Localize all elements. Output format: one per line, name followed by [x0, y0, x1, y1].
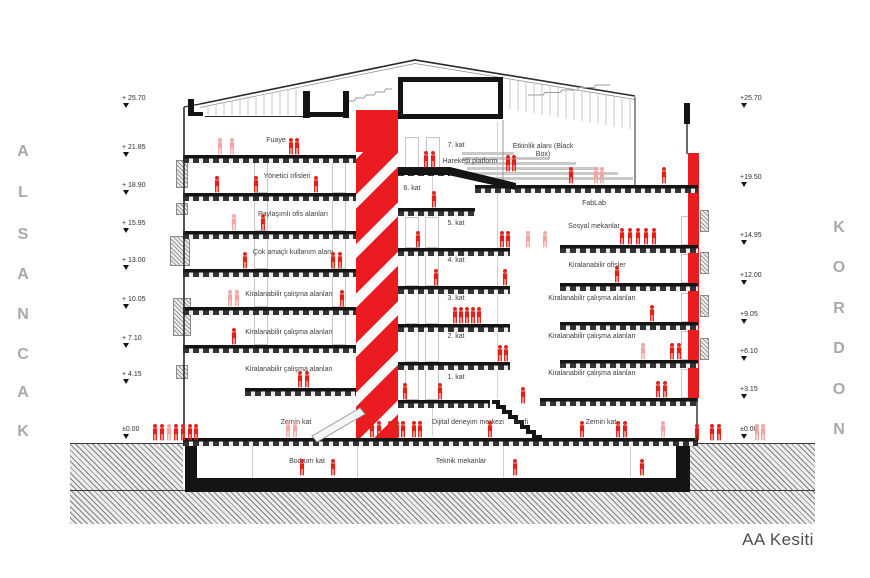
- person-figure: [416, 421, 424, 438]
- side-letter-left: S: [10, 226, 36, 244]
- signage-pole: [684, 103, 690, 124]
- person-figure: [291, 421, 299, 438]
- room-label: Kiralanabilir çalışma alanları: [242, 291, 337, 299]
- elevation-marker: ±0.00: [122, 426, 139, 433]
- person-figure: [486, 421, 494, 438]
- room-label: 1. kat: [436, 374, 476, 382]
- person-figure: [228, 138, 236, 155]
- room-label: Teknik mekanlar: [414, 458, 509, 466]
- elevation-marker: + 25.70: [122, 95, 146, 102]
- elevation-marker: +6.10: [740, 348, 758, 355]
- room-label: Kiralanabilir ofisler: [547, 262, 647, 270]
- person-figure: [252, 176, 260, 193]
- person-figure: [213, 176, 221, 193]
- room-label: 3. kat: [436, 295, 476, 303]
- black-box-volume: [401, 80, 501, 117]
- room-label: 2. kat: [436, 333, 476, 341]
- person-figure: [414, 231, 422, 248]
- side-letter-right: R: [826, 300, 852, 318]
- person-figure: [312, 176, 320, 193]
- elevation-marker: + 7.10: [122, 335, 142, 342]
- elevation-arrow: [741, 394, 747, 399]
- side-letter-left: K: [10, 423, 36, 441]
- side-letter-right: K: [826, 219, 852, 237]
- person-figure: [329, 459, 337, 476]
- elevation-arrow: [741, 103, 747, 108]
- elevation-marker: +9.05: [740, 311, 758, 318]
- elevation-arrow: [123, 190, 129, 195]
- person-figure: [504, 231, 512, 248]
- person-figure: [510, 155, 518, 172]
- person-figure: [511, 459, 519, 476]
- person-figure: [293, 138, 301, 155]
- room-label: FabLab: [564, 200, 624, 208]
- elevation-marker: +3.15: [740, 386, 758, 393]
- person-figure: [759, 424, 767, 441]
- person-figure: [650, 228, 658, 245]
- side-letter-left: A: [10, 266, 36, 284]
- person-figure: [578, 421, 586, 438]
- person-figure: [336, 252, 344, 269]
- person-figure: [648, 305, 656, 322]
- room-label: Kiralanabilir çalışma alanları: [543, 370, 641, 378]
- room-label: 5. kat: [436, 220, 476, 228]
- person-figure: [519, 387, 527, 404]
- room-label: Fuaye: [236, 137, 316, 145]
- person-figure: [401, 383, 409, 400]
- elevation-marker: + 13.00: [122, 257, 146, 264]
- elevation-arrow: [123, 434, 129, 439]
- elevation-arrow: [123, 228, 129, 233]
- room-label: Amfi: [501, 419, 541, 427]
- elevation-marker: +12.00: [740, 272, 762, 279]
- elevation-arrow: [741, 356, 747, 361]
- side-letter-right: N: [826, 421, 852, 439]
- person-figure: [659, 421, 667, 438]
- elevation-arrow: [741, 280, 747, 285]
- person-figure: [524, 231, 532, 248]
- elevation-marker: + 21.85: [122, 144, 146, 151]
- person-figure: [634, 228, 642, 245]
- person-figure: [432, 269, 440, 286]
- elevation-arrow: [123, 343, 129, 348]
- person-figure: [502, 345, 510, 362]
- room-label: Kiralanabilir çalışma alanları: [543, 333, 641, 341]
- side-letter-right: O: [826, 381, 852, 399]
- elevation-arrow: [123, 379, 129, 384]
- elevation-marker: +25.70: [740, 95, 762, 102]
- person-figure: [642, 228, 650, 245]
- person-figure: [216, 138, 224, 155]
- elevation-arrow: [123, 103, 129, 108]
- elevation-arrow: [741, 434, 747, 439]
- elevation-marker: + 4.15: [122, 371, 142, 378]
- person-figure: [639, 343, 647, 360]
- person-figure: [675, 343, 683, 360]
- person-figure: [429, 151, 437, 168]
- side-letter-left: A: [10, 384, 36, 402]
- room-label: 6. kat: [392, 185, 432, 193]
- room-label: 4. kat: [436, 257, 476, 265]
- side-letter-left: N: [10, 306, 36, 324]
- elevation-arrow: [123, 265, 129, 270]
- elevation-marker: +19.50: [740, 174, 762, 181]
- elevation-arrow: [123, 152, 129, 157]
- person-figure: [298, 459, 306, 476]
- room-label: Paylaşımlı ofis alanları: [238, 211, 348, 219]
- drawing-linework: [0, 0, 870, 578]
- person-figure: [230, 214, 238, 231]
- person-figure: [621, 421, 629, 438]
- elevation-marker: +14.95: [740, 232, 762, 239]
- side-letter-left: C: [10, 346, 36, 364]
- room-label: Kiralanabilir çalışma alanları: [242, 329, 337, 337]
- person-figure: [715, 424, 723, 441]
- person-figure: [233, 290, 241, 307]
- section-drawing: AA Kesiti FuayeYönetici ofisleriPaylaşım…: [0, 0, 870, 578]
- person-figure: [638, 459, 646, 476]
- person-figure: [661, 381, 669, 398]
- person-figure: [399, 421, 407, 438]
- room-label: Kiralanabilir çalışma alanları: [543, 295, 641, 303]
- person-figure: [598, 167, 606, 184]
- person-figure: [338, 290, 346, 307]
- side-letter-right: D: [826, 340, 852, 358]
- person-figure: [192, 424, 200, 441]
- person-figure: [626, 228, 634, 245]
- elevation-arrow: [741, 319, 747, 324]
- drawing-title: AA Kesiti: [742, 530, 814, 550]
- person-figure: [230, 328, 238, 345]
- elevation-arrow: [741, 240, 747, 245]
- person-figure: [501, 269, 509, 286]
- person-figure: [259, 214, 267, 231]
- roof-stair-left: [346, 89, 392, 101]
- person-figure: [618, 228, 626, 245]
- elevation-arrow: [741, 182, 747, 187]
- person-figure: [375, 421, 383, 438]
- person-figure: [430, 191, 438, 208]
- room-label: 7. kat: [436, 142, 476, 150]
- side-letter-left: A: [10, 143, 36, 161]
- elevation-arrow: [123, 304, 129, 309]
- elevation-marker: + 18.90: [122, 182, 146, 189]
- person-figure: [541, 231, 549, 248]
- person-figure: [693, 424, 701, 441]
- side-letter-left: L: [10, 184, 36, 202]
- elevation-marker: + 15.95: [122, 220, 146, 227]
- person-figure: [436, 383, 444, 400]
- side-letter-right: O: [826, 259, 852, 277]
- person-figure: [567, 167, 575, 184]
- person-figure: [475, 307, 483, 324]
- person-figure: [660, 167, 668, 184]
- person-figure: [303, 371, 311, 388]
- person-figure: [241, 252, 249, 269]
- person-figure: [613, 266, 621, 283]
- room-label: Kiralanabilir çalışma alanları: [242, 366, 337, 374]
- elevation-marker: + 10.05: [122, 296, 146, 303]
